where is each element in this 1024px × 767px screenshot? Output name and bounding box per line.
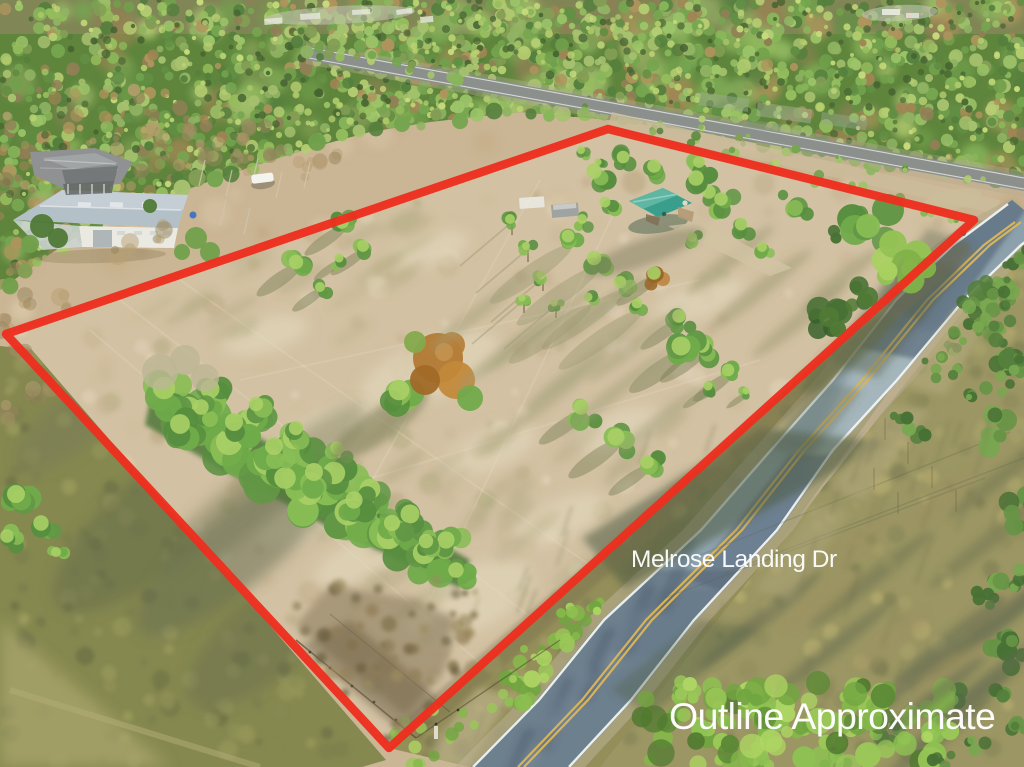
svg-text:Outline Approximate: Outline Approximate <box>669 695 995 737</box>
svg-text:Melrose Landing Dr: Melrose Landing Dr <box>631 546 837 573</box>
